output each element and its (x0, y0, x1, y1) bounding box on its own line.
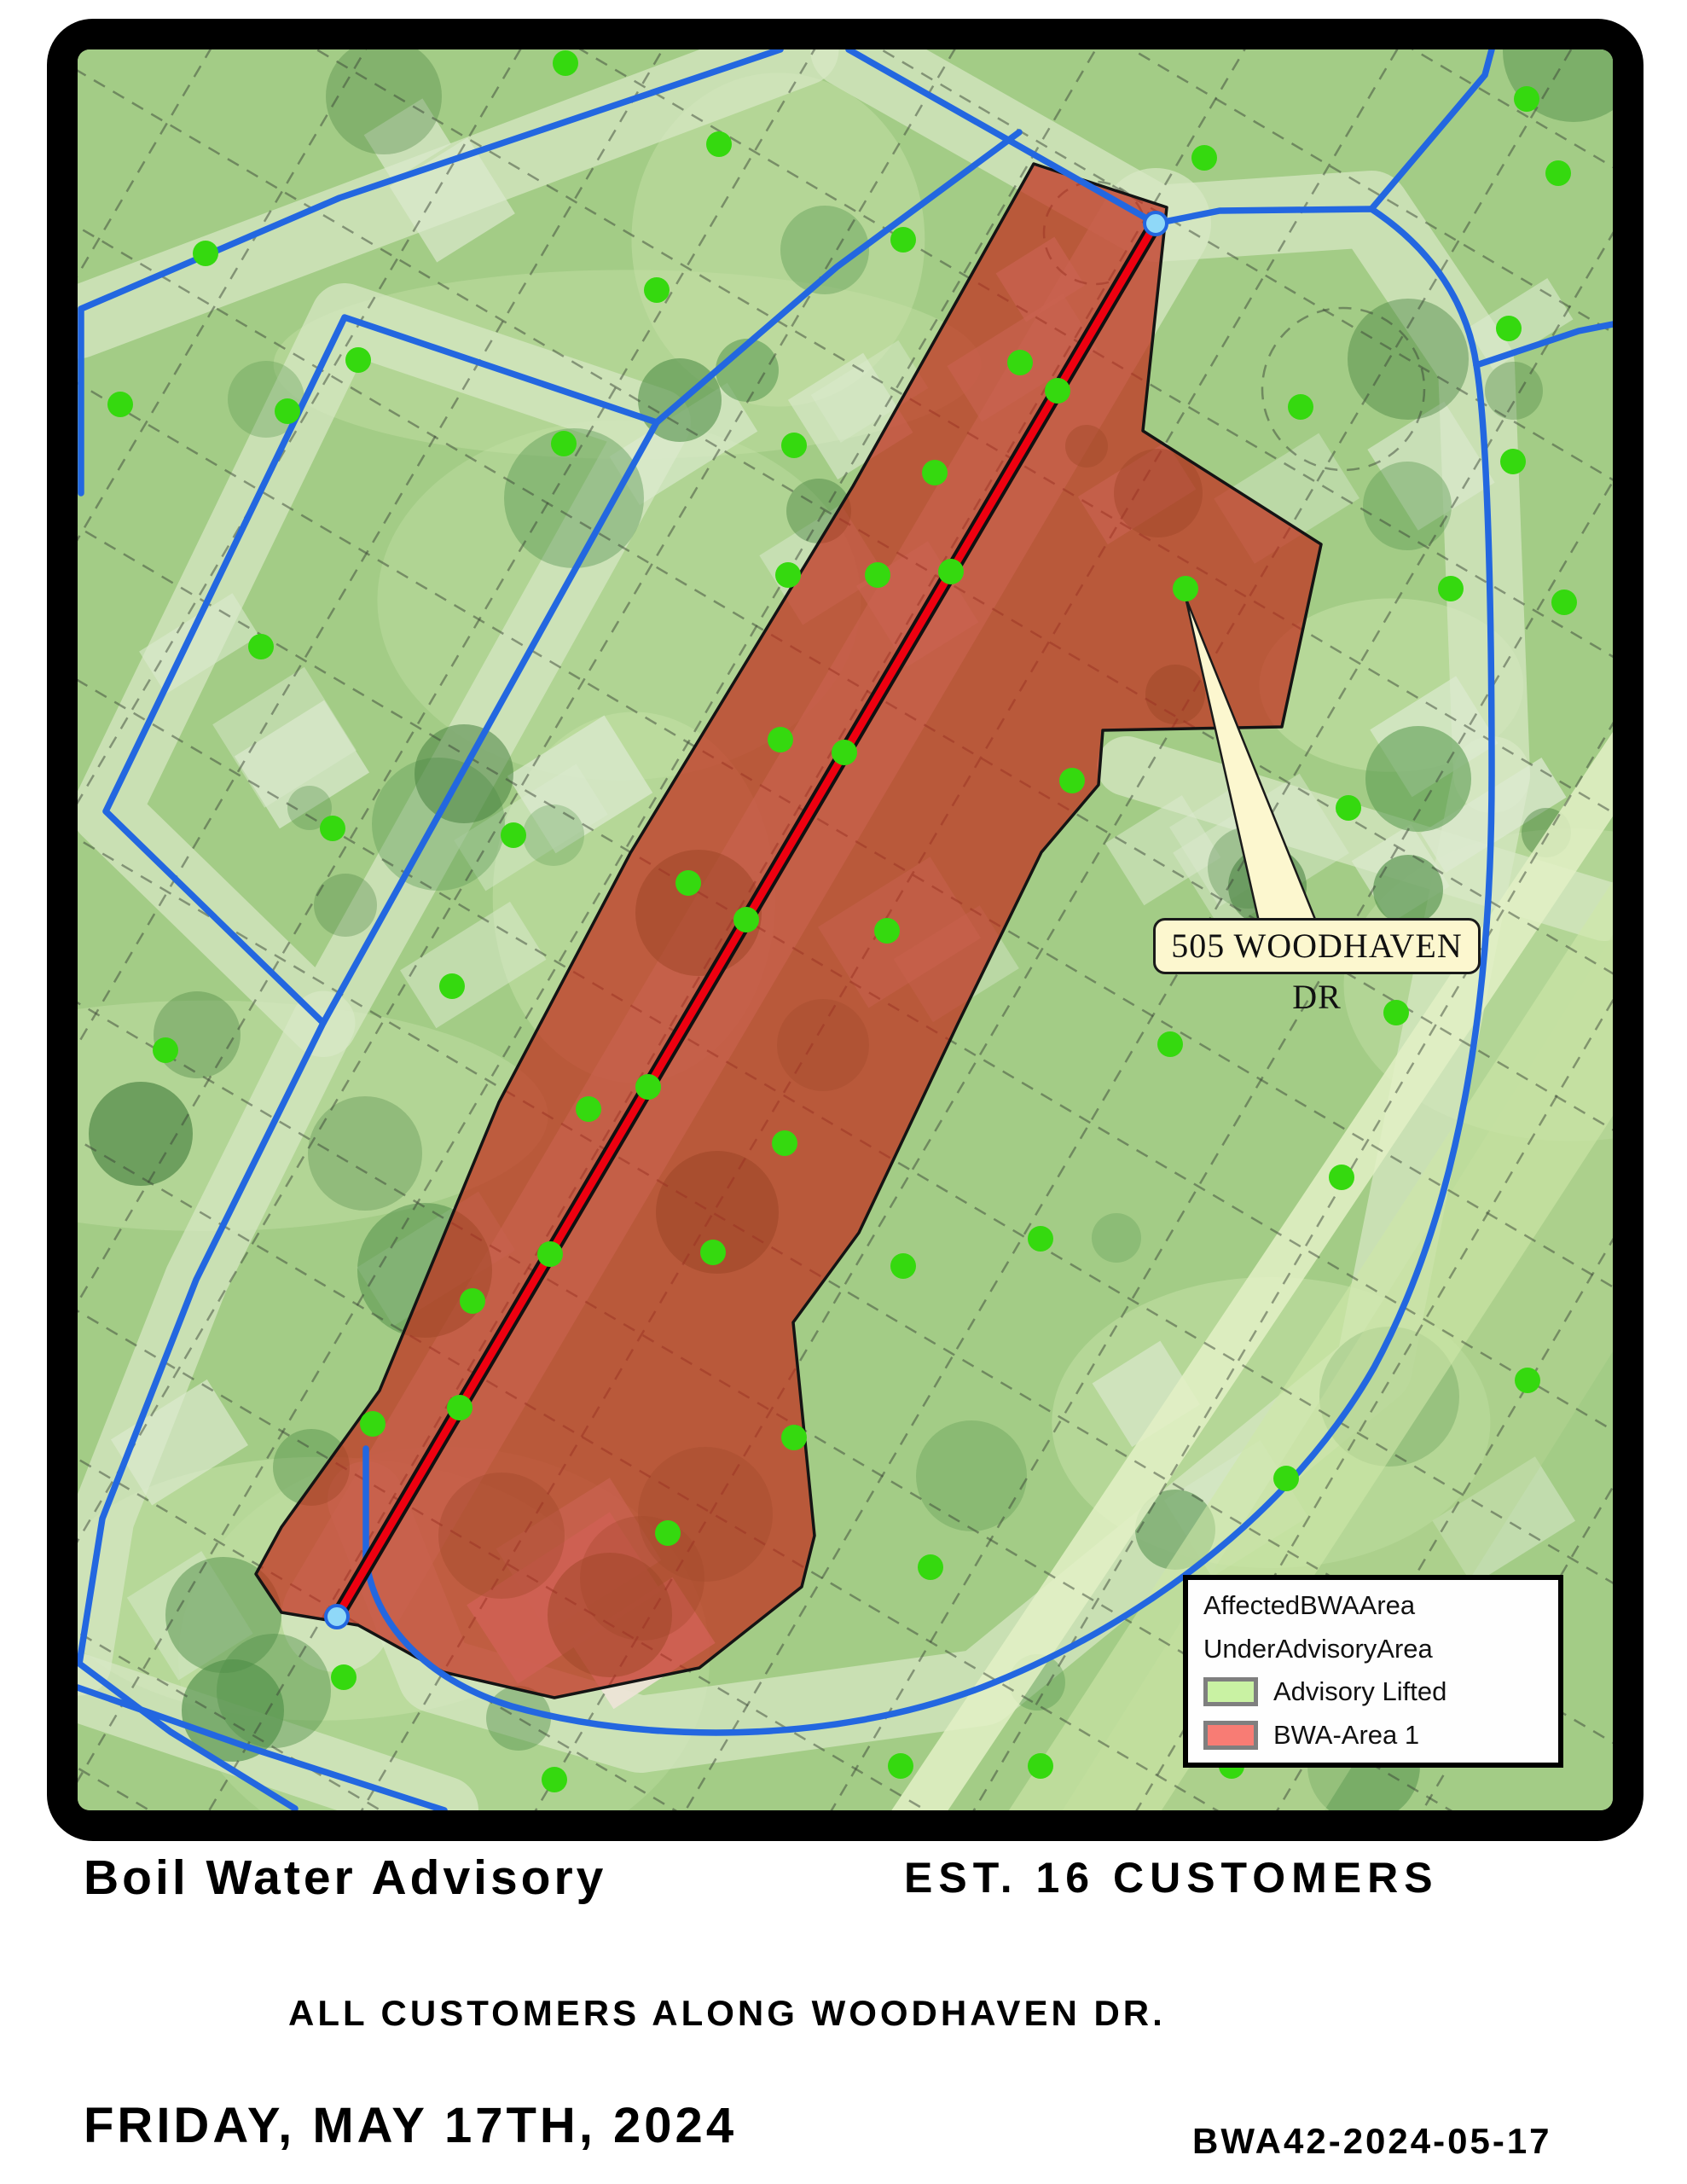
advisory-reference-number: BWA42-2024-05-17 (1192, 2121, 1552, 2162)
advisory-date: FRIDAY, MAY 17TH, 2024 (84, 2097, 737, 2154)
legend-item-advisory-lifted: Advisory Lifted (1203, 1676, 1543, 1707)
map-legend: AffectedBWAArea UnderAdvisoryArea Adviso… (1183, 1575, 1563, 1768)
map-frame: 505 WOODHAVEN DR AffectedBWAArea UnderAd… (47, 19, 1644, 1841)
bwa-area-1-label: BWA-Area 1 (1273, 1720, 1419, 1751)
advisory-lifted-label: Advisory Lifted (1273, 1676, 1446, 1707)
legend-layer-affected: AffectedBWAArea (1203, 1590, 1543, 1621)
advisory-lifted-swatch (1203, 1677, 1258, 1706)
legend-layer-under-advisory: UnderAdvisoryArea (1203, 1634, 1543, 1664)
map-canvas: 505 WOODHAVEN DR AffectedBWAArea UnderAd… (78, 49, 1613, 1810)
advisory-title: Boil Water Advisory (84, 1850, 606, 1906)
customer-count: EST. 16 CUSTOMERS (904, 1853, 1439, 1902)
boil-water-advisory-flyer: 505 WOODHAVEN DR AffectedBWAArea UnderAd… (0, 0, 1687, 2184)
legend-item-bwa-area-1: BWA-Area 1 (1203, 1720, 1543, 1751)
affected-customers-note: ALL CUSTOMERS ALONG WOODHAVEN DR. (288, 1993, 1166, 2034)
address-callout: 505 WOODHAVEN DR (1153, 918, 1481, 974)
bwa-area-1-swatch (1203, 1721, 1258, 1750)
